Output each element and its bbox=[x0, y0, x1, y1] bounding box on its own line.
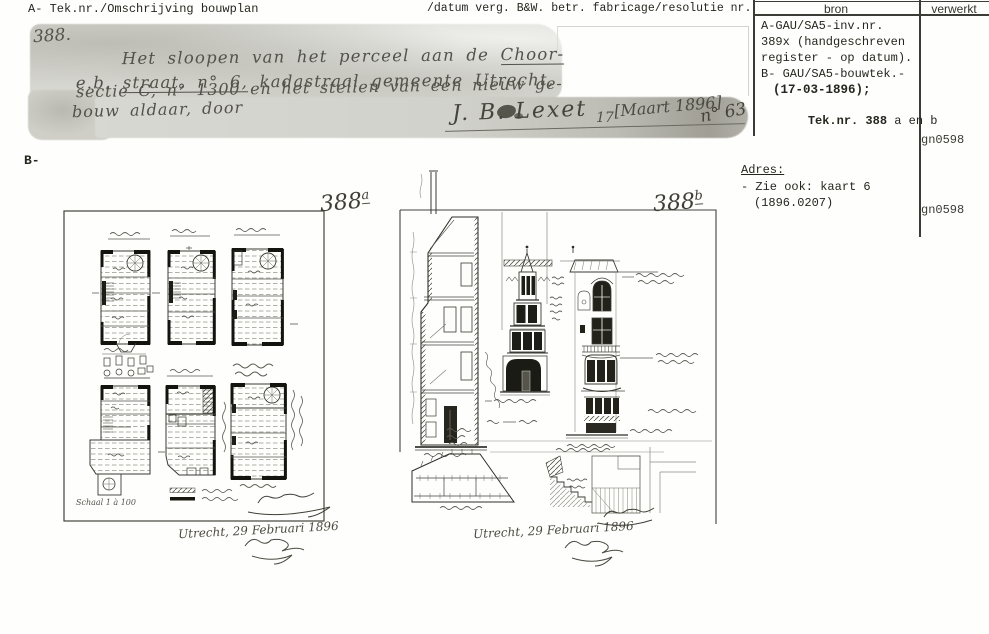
chimney bbox=[429, 171, 438, 214]
teknr-rest: a en b bbox=[887, 114, 937, 128]
applicant-signature-a bbox=[245, 539, 304, 564]
ground-lines bbox=[478, 441, 712, 452]
architect-signature-a bbox=[248, 493, 330, 517]
header-right: /datum verg. B&W. betr. fabricage/resolu… bbox=[427, 2, 751, 15]
dim-squiggle-left bbox=[412, 232, 414, 424]
dim-squiggle-top bbox=[420, 174, 422, 198]
sheet-b-drawing bbox=[400, 171, 716, 566]
plan-title-squiggles-row2 bbox=[167, 364, 273, 376]
teknr-bold: Tek.nr. 388 bbox=[808, 114, 887, 128]
archive-card-scan: A- Tek.nr./Omschrijving bouwplan /datum … bbox=[0, 0, 989, 634]
architect-signature-b bbox=[598, 508, 654, 525]
sheet-b-border bbox=[400, 210, 716, 524]
bron-line-4: B- GAU/SA5-bouwtek.- bbox=[761, 67, 905, 81]
note-number: 388. bbox=[32, 25, 71, 48]
building-section bbox=[415, 217, 487, 457]
bron-line-3: register - op datum). bbox=[761, 51, 912, 65]
stair-detail bbox=[546, 447, 696, 513]
paper-edge-line bbox=[748, 26, 749, 96]
dim-ticks bbox=[410, 252, 417, 392]
floor-plan-6 bbox=[231, 384, 286, 488]
floor-plan-4 bbox=[90, 386, 150, 495]
verwerkt-column-header: verwerkt bbox=[919, 2, 989, 16]
sheet-a-drawing bbox=[64, 211, 330, 564]
legend bbox=[170, 488, 238, 501]
floor-plan-5 bbox=[166, 386, 215, 475]
facade-annotations-right bbox=[620, 274, 698, 433]
plan-title-squiggles bbox=[108, 229, 280, 240]
note-signature: J. B. Lexet bbox=[452, 97, 588, 127]
table-left-rule bbox=[753, 0, 755, 136]
bron-line-2: 389x (handgeschreven bbox=[761, 35, 905, 49]
bron-line-1: A-GAU/SA5-inv.nr. bbox=[761, 19, 883, 33]
header-left: A- Tek.nr./Omschrijving bouwplan bbox=[28, 2, 258, 16]
floor-plan-2 bbox=[168, 246, 215, 344]
bron-date-line: (17-03-1896); bbox=[773, 83, 871, 97]
bron-column-header: bron bbox=[753, 2, 919, 16]
architectural-drawings bbox=[0, 155, 760, 634]
bron-teknr-line: Tek.nr. 388 a en b bbox=[779, 100, 937, 142]
verwerkt-value-bottom: gn0598 bbox=[921, 203, 964, 217]
lintel-beam bbox=[504, 260, 552, 266]
adres-line-2: (1896.0207) bbox=[754, 196, 833, 210]
applicant-signature-b bbox=[565, 541, 623, 566]
paper-edge-line bbox=[557, 26, 748, 27]
verwerkt-value-top: gn0598 bbox=[921, 133, 964, 147]
floor-plan-3 bbox=[232, 249, 283, 345]
note-day: 17 bbox=[596, 110, 614, 126]
floor-plan-1 bbox=[101, 251, 150, 352]
roof-section bbox=[412, 449, 514, 510]
adres-line-1: - Zie ook: kaart 6 bbox=[741, 180, 871, 194]
foundation-detail bbox=[102, 349, 153, 379]
